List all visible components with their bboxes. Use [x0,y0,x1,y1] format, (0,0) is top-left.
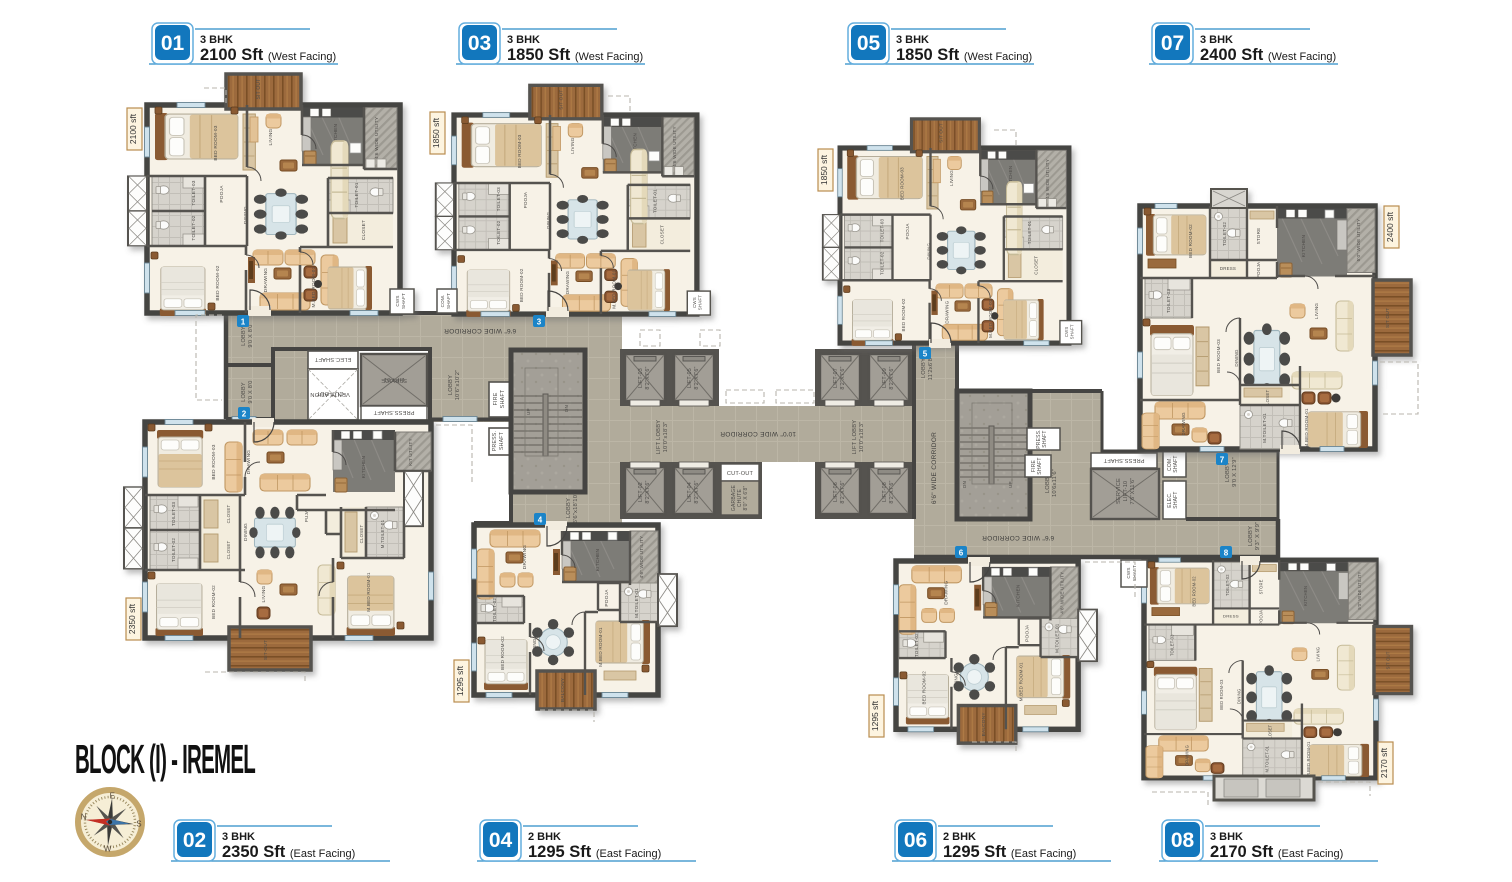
svg-text:CLOSET: CLOSET [226,541,231,560]
svg-text:KITCHEN: KITCHEN [361,455,367,478]
svg-text:PRESS.: PRESS. [492,431,498,451]
svg-text:CLOSET: CLOSET [226,505,231,524]
svg-text:02: 02 [183,829,206,852]
svg-text:3 BHK: 3 BHK [1200,34,1233,46]
svg-text:BED ROOM-03: BED ROOM-03 [211,444,217,479]
svg-text:8'2"X7'6": 8'2"X7'6" [694,366,700,389]
svg-text:UP: UP [1008,481,1013,488]
svg-text:M.BED ROOM-01: M.BED ROOM-01 [366,572,371,612]
svg-text:TOILET-02: TOILET-02 [171,538,176,562]
svg-text:LOBBY: LOBBY [566,498,572,518]
svg-text:3 BHK: 3 BHK [1210,831,1243,843]
svg-text:CLOSET: CLOSET [359,525,364,544]
svg-text:CWS: CWS [1126,567,1131,578]
svg-text:3 BHK: 3 BHK [222,831,255,843]
svg-text:8'2"X7'6": 8'2"X7'6" [889,480,895,503]
svg-text:LIVING: LIVING [261,585,267,602]
svg-text:03: 03 [468,32,491,55]
svg-text:3 BHK: 3 BHK [507,34,540,46]
svg-text:N: N [81,813,87,822]
svg-text:1850 sft: 1850 sft [819,154,829,185]
svg-text:DN: DN [564,405,569,412]
svg-text:LIFT-02: LIFT-02 [638,482,644,502]
svg-text:LIFT-05: LIFT-05 [687,368,693,388]
svg-text:LIFT-06: LIFT-06 [833,482,839,502]
svg-text:LIFT-07: LIFT-07 [833,368,839,388]
svg-text:10'0"x18'3": 10'0"x18'3" [663,422,669,453]
svg-text:S: S [136,820,141,829]
svg-text:CUT-OUT: CUT-OUT [727,471,754,477]
svg-text:7: 7 [1220,456,1225,465]
svg-text:LOBBY: LOBBY [921,358,927,378]
svg-text:10'6x11'6": 10'6x11'6" [1052,469,1058,497]
svg-text:2350 sft: 2350 sft [127,603,137,634]
svg-text:2170 sft: 2170 sft [1379,747,1389,778]
svg-text:1850 sft: 1850 sft [431,117,441,148]
svg-text:BED ROOM-02: BED ROOM-02 [211,585,216,619]
svg-text:2 BHK: 2 BHK [943,831,976,843]
svg-text:9'0 X 8'0: 9'0 X 8'0 [248,324,254,347]
svg-text:8'2"X7'6": 8'2"X7'6" [840,480,846,503]
svg-text:DINING: DINING [243,523,249,541]
svg-text:LOBBY: LOBBY [448,375,454,395]
svg-text:6'6" WIDE CORRIDOR: 6'6" WIDE CORRIDOR [982,534,1054,541]
svg-text:TOILET-03: TOILET-03 [171,502,176,526]
svg-text:2 BHK: 2 BHK [528,831,561,843]
svg-text:2400 sft: 2400 sft [1385,211,1395,242]
svg-text:CUT-OUT: CUT-OUT [316,390,343,396]
svg-text:LIFT-01: LIFT-01 [384,376,405,382]
svg-text:08: 08 [1171,829,1195,852]
svg-text:6'6" WIDE CORRIDOR: 6'6" WIDE CORRIDOR [931,432,938,504]
svg-text:8'2"X7'6": 8'2"X7'6" [840,366,846,389]
svg-text:8'2"X7'6": 8'2"X7'6" [889,366,895,389]
svg-text:ELEC.SHAFT: ELEC.SHAFT [314,356,351,362]
svg-text:SIT-OUT: SIT-OUT [263,640,269,660]
svg-text:BLOCK (I) - IREMEL: BLOCK (I) - IREMEL [75,736,255,782]
svg-text:SHAFT: SHAFT [446,293,451,309]
svg-text:05: 05 [857,32,881,55]
svg-text:SHAFT: SHAFT [1042,430,1048,447]
svg-text:LIFT-08: LIFT-08 [882,482,888,502]
svg-text:6: 6 [959,549,964,558]
svg-text:LIFT-03: LIFT-03 [638,368,644,388]
svg-text:10'0" WIDE CORRIDOR: 10'0" WIDE CORRIDOR [720,430,796,437]
svg-text:KIT UTILITY: KIT UTILITY [408,438,413,466]
svg-text:8: 8 [1224,549,1229,558]
svg-text:M.TOILET-01: M.TOILET-01 [380,519,385,548]
svg-text:LIFT-10: LIFT-10 [1123,481,1129,502]
svg-text:9'0 X 12'9": 9'0 X 12'9" [1232,457,1238,487]
svg-text:SHAFT: SHAFT [1173,491,1179,508]
svg-text:SHAFT: SHAFT [499,431,505,450]
svg-text:LIFT LOBBY: LIFT LOBBY [656,420,662,455]
svg-text:LOBBY: LOBBY [241,326,247,346]
svg-text:1: 1 [241,318,246,327]
svg-text:SERVICE: SERVICE [1116,478,1122,504]
svg-text:3 BHK: 3 BHK [200,34,233,46]
svg-text:8'0" X 6'8": 8'0" X 6'8" [743,486,749,511]
svg-text:6'6"x18'10": 6'6"x18'10" [573,493,579,524]
svg-text:01: 01 [161,32,185,55]
svg-text:2100 sft: 2100 sft [128,113,138,144]
svg-text:1295 sft: 1295 sft [455,665,465,696]
svg-text:11'2x6'8": 11'2x6'8" [928,356,934,381]
svg-text:2: 2 [242,410,247,419]
svg-text:E: E [110,792,115,801]
svg-text:8'2"X7'6": 8'2"X7'6" [645,480,651,503]
svg-text:7'6"X11'6": 7'6"X11'6" [1130,478,1136,505]
svg-text:5: 5 [923,350,928,359]
svg-text:04: 04 [489,829,513,852]
svg-text:4: 4 [538,516,543,525]
svg-text:6'6" WIDE CORRIDOR: 6'6" WIDE CORRIDOR [444,327,516,334]
svg-text:UP: UP [526,408,531,415]
svg-text:LIFT-09: LIFT-09 [882,368,888,388]
svg-text:3 BHK: 3 BHK [896,34,929,46]
svg-text:LOBBY: LOBBY [241,382,247,402]
svg-text:PRESS.SHAFT: PRESS.SHAFT [1103,457,1144,463]
svg-text:PRESS.SHAFT: PRESS.SHAFT [373,409,414,415]
svg-text:10'0"x18'3": 10'0"x18'3" [859,422,865,453]
svg-text:DN: DN [962,481,967,488]
svg-text:FIRE: FIRE [493,392,499,405]
svg-text:COM.: COM. [440,295,445,308]
svg-text:3: 3 [537,318,542,327]
svg-text:8'2"X7'6": 8'2"X7'6" [694,480,700,503]
svg-text:LIFT-04: LIFT-04 [687,482,693,502]
svg-text:SHAFT: SHAFT [500,389,506,408]
svg-text:SHAFT: SHAFT [1037,457,1043,474]
svg-text:06: 06 [904,829,927,852]
svg-text:W: W [104,844,112,853]
svg-text:07: 07 [1161,32,1184,55]
svg-text:LIFT LOBBY: LIFT LOBBY [852,420,858,455]
svg-text:8'2"X7'6": 8'2"X7'6" [645,366,651,389]
svg-text:9'3" X 9'9": 9'3" X 9'9" [1255,522,1261,551]
svg-text:9'0 X 8'0: 9'0 X 8'0 [248,380,254,403]
svg-text:10'6"x10'2": 10'6"x10'2" [455,370,461,401]
svg-text:LOBBY: LOBBY [1248,526,1254,546]
svg-text:SHAFT: SHAFT [1173,455,1179,472]
svg-text:1295 sft: 1295 sft [870,700,880,731]
